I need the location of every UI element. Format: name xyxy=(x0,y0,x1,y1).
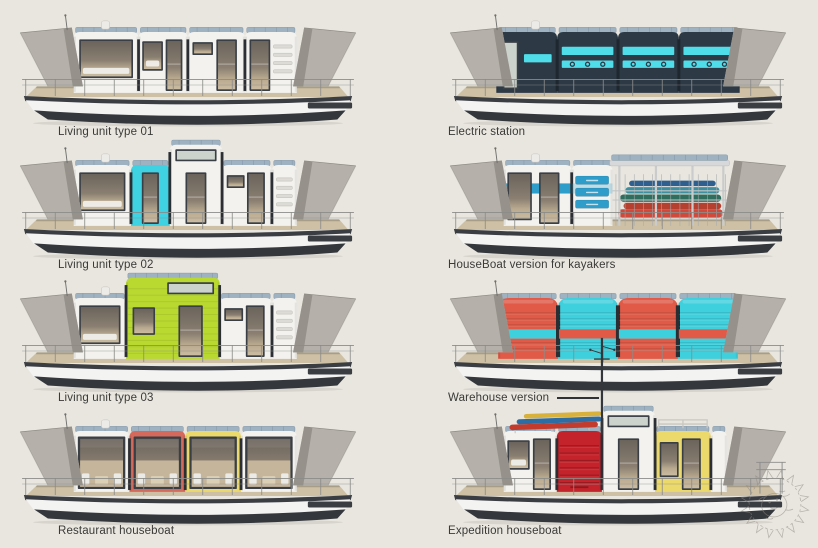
boat-cell-living-unit-03: Living unit type 03 xyxy=(14,272,414,405)
boat-caption: Electric station xyxy=(440,126,810,139)
boat-cell-warehouse-version: Warehouse version xyxy=(440,272,810,405)
boat-cell-restaurant-houseboat: Restaurant houseboat xyxy=(14,405,414,538)
boat-cell-electric-station: Electric station xyxy=(440,6,810,139)
boat-cell-living-unit-01: Living unit type 01 xyxy=(14,6,414,139)
boat-illustration-restaurant-houseboat xyxy=(10,407,366,525)
caption-text: Living unit type 02 xyxy=(58,259,154,271)
boat-caption: Living unit type 03 xyxy=(14,392,414,405)
boat-caption: Warehouse version xyxy=(440,392,810,405)
caption-text: Warehouse version xyxy=(448,392,549,404)
caption-leader-line xyxy=(557,397,599,399)
boat-caption: Restaurant houseboat xyxy=(14,525,414,538)
boat-illustration-living-unit-01 xyxy=(10,8,366,126)
boat-illustration-living-unit-02 xyxy=(10,141,366,259)
boat-caption: Living unit type 02 xyxy=(14,259,414,272)
boat-illustration-warehouse-version xyxy=(440,274,796,392)
caption-text: HouseBoat version for kayakers xyxy=(448,259,616,271)
boat-variants-grid: Living unit type 01 Electric station Liv… xyxy=(14,6,810,538)
boat-cell-kayakers-version: HouseBoat version for kayakers xyxy=(440,139,810,272)
boat-cell-living-unit-02: Living unit type 02 xyxy=(14,139,414,272)
caption-text: Restaurant houseboat xyxy=(58,525,174,537)
caption-text: Living unit type 01 xyxy=(58,126,154,138)
houseboat-variants-sheet: Living unit type 01 Electric station Liv… xyxy=(0,0,818,545)
caption-text: Electric station xyxy=(448,126,525,138)
boat-illustration-electric-station xyxy=(440,8,796,126)
boat-caption: Living unit type 01 xyxy=(14,126,414,139)
boat-illustration-living-unit-03 xyxy=(10,274,366,392)
caption-text: Expedition houseboat xyxy=(448,525,562,537)
boat-caption: HouseBoat version for kayakers xyxy=(440,259,810,272)
caption-text: Living unit type 03 xyxy=(58,392,154,404)
watermark-stamp-logo xyxy=(736,465,814,543)
boat-illustration-kayakers-version xyxy=(440,141,796,259)
sun-stamp-icon xyxy=(736,465,814,543)
